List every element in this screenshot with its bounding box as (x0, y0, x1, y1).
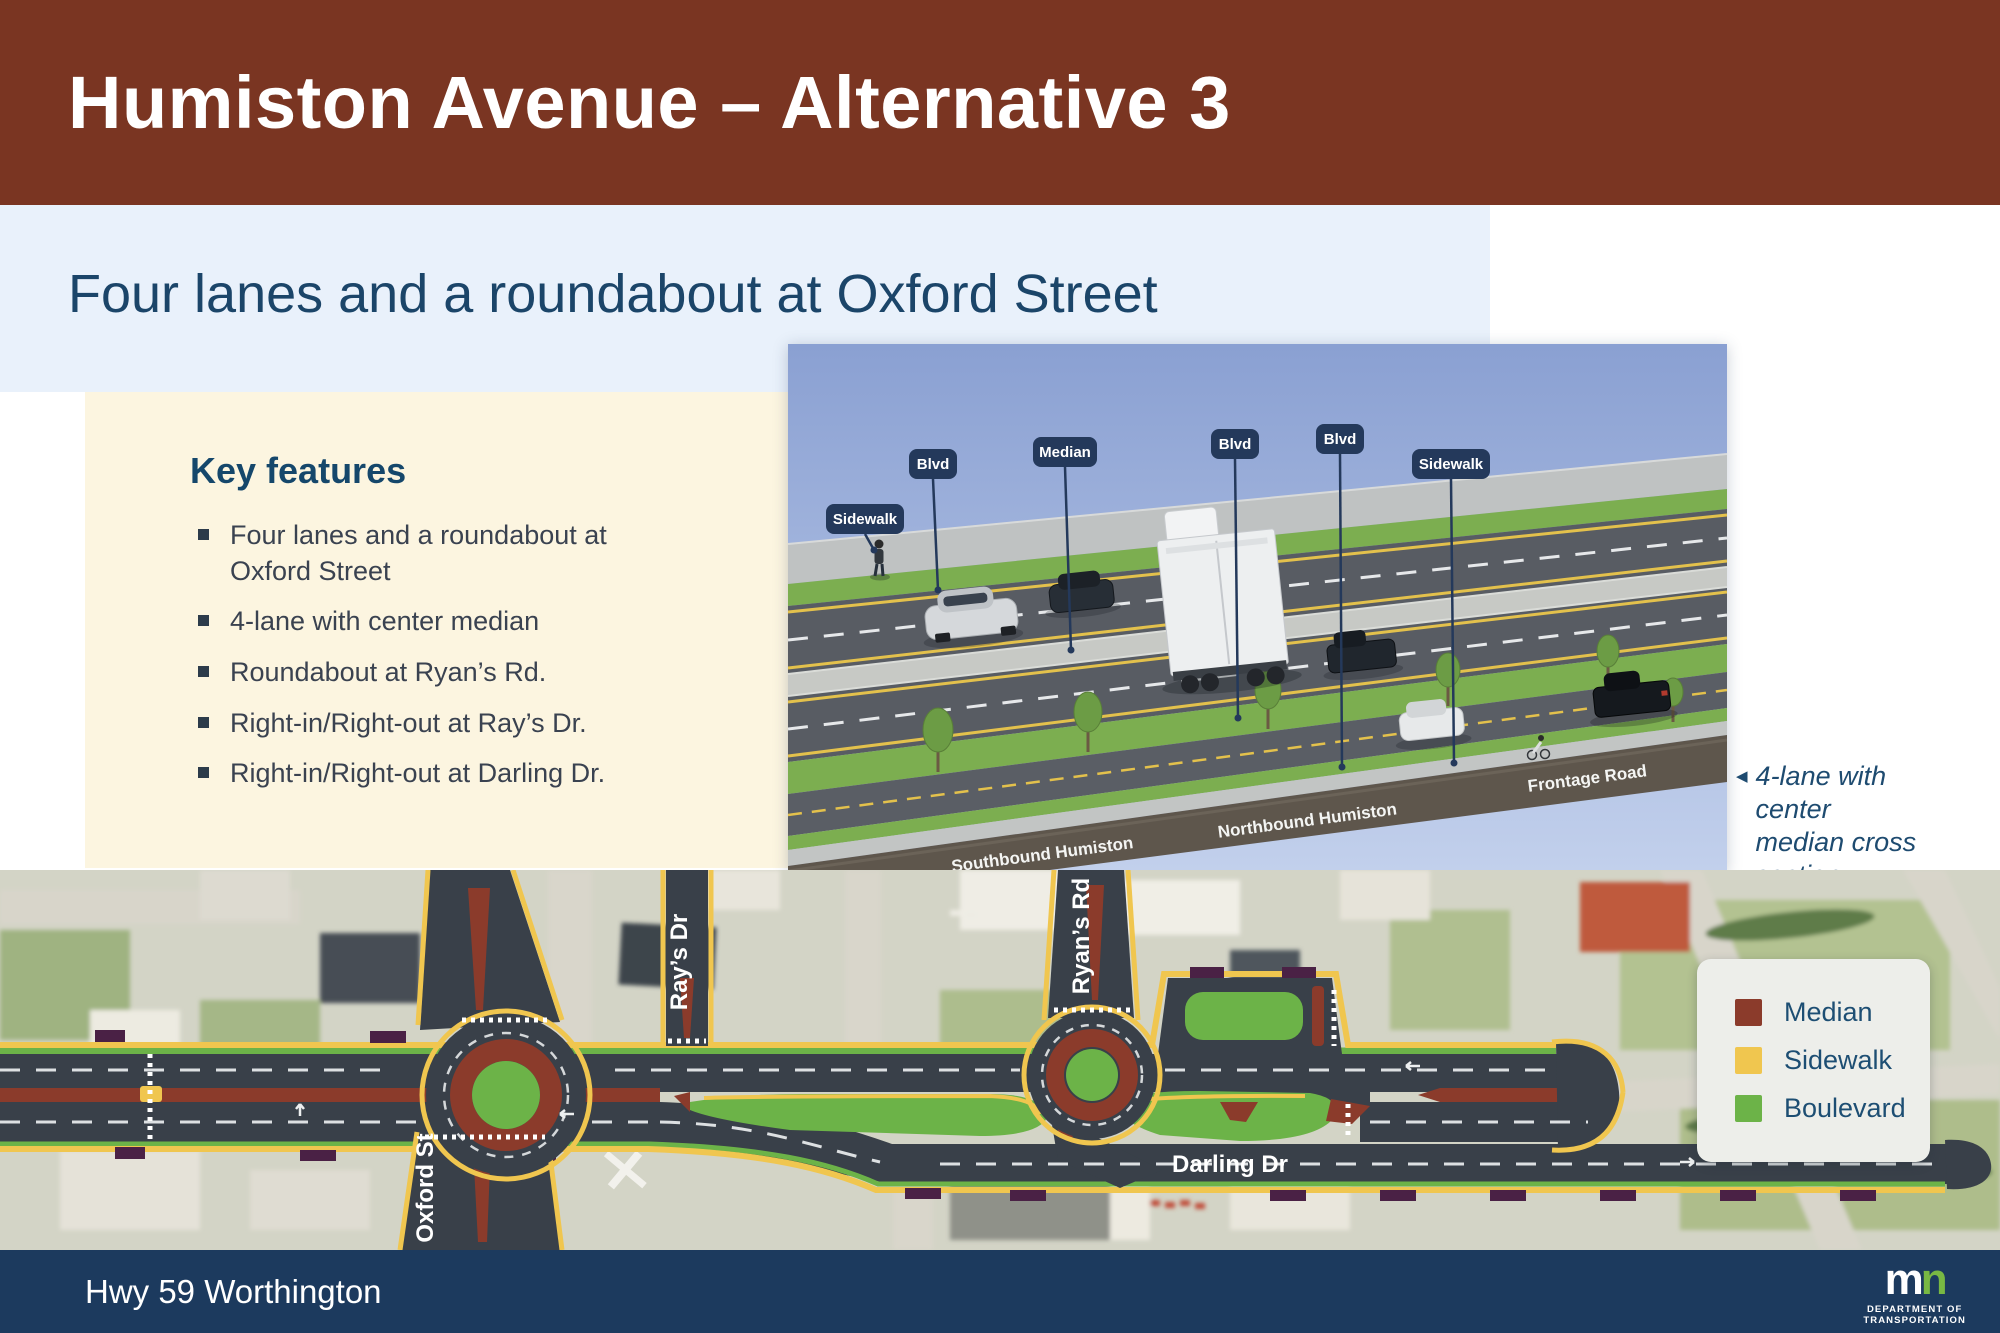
header-bar: Humiston Avenue – Alternative 3 (0, 0, 2000, 205)
key-features-box: Key features Four lanes and a roundabout… (85, 392, 788, 868)
map-legend: Median Sidewalk Boulevard (1697, 959, 1930, 1162)
oxford-st-label: Oxford St (412, 1133, 439, 1242)
list-item: Right-in/Right-out at Ray’s Dr. (190, 706, 690, 742)
list-item: 4-lane with center median (190, 604, 690, 640)
sidewalk-swatch (1735, 1047, 1762, 1074)
legend-item-sidewalk: Sidewalk (1735, 1045, 1930, 1076)
badge-sidewalk-left: Sidewalk (833, 511, 898, 528)
ryans-rd-label: Ryan’s Rd (1068, 878, 1095, 994)
page-title: Humiston Avenue – Alternative 3 (0, 0, 2000, 205)
legend-item-median: Median (1735, 997, 1930, 1028)
footer-location: Hwy 59 Worthington (0, 1273, 382, 1311)
list-item: Four lanes and a roundabout at Oxford St… (190, 518, 690, 589)
key-features-heading: Key features (190, 450, 788, 492)
boulevard-swatch (1735, 1095, 1762, 1122)
badge-blvd-mid: Blvd (1219, 436, 1252, 453)
badge-blvd-right: Blvd (1324, 431, 1357, 448)
key-features-list: Four lanes and a roundabout at Oxford St… (190, 518, 690, 792)
badge-sidewalk-right: Sidewalk (1419, 456, 1484, 473)
subtitle-text: Four lanes and a roundabout at Oxford St… (0, 205, 1490, 325)
list-item: Right-in/Right-out at Darling Dr. (190, 756, 690, 792)
median-swatch (1735, 999, 1762, 1026)
rays-dr-label: Ray’s Dr (666, 914, 693, 1011)
cross-section-render: Southbound Humiston Northbound Humiston … (788, 344, 1727, 872)
darling-dr-label: Darling Dr (1172, 1151, 1288, 1178)
list-item: Roundabout at Ryan’s Rd. (190, 655, 690, 691)
mndot-logo: mn DEPARTMENT OF TRANSPORTATION (1863, 1258, 1966, 1325)
legend-item-boulevard: Boulevard (1735, 1093, 1930, 1124)
mn-logo-icon: mn (1863, 1258, 1966, 1302)
footer-bar: Hwy 59 Worthington mn DEPARTMENT OF TRAN… (0, 1250, 2000, 1333)
badge-blvd-left: Blvd (917, 456, 950, 473)
badge-median: Median (1039, 444, 1091, 461)
